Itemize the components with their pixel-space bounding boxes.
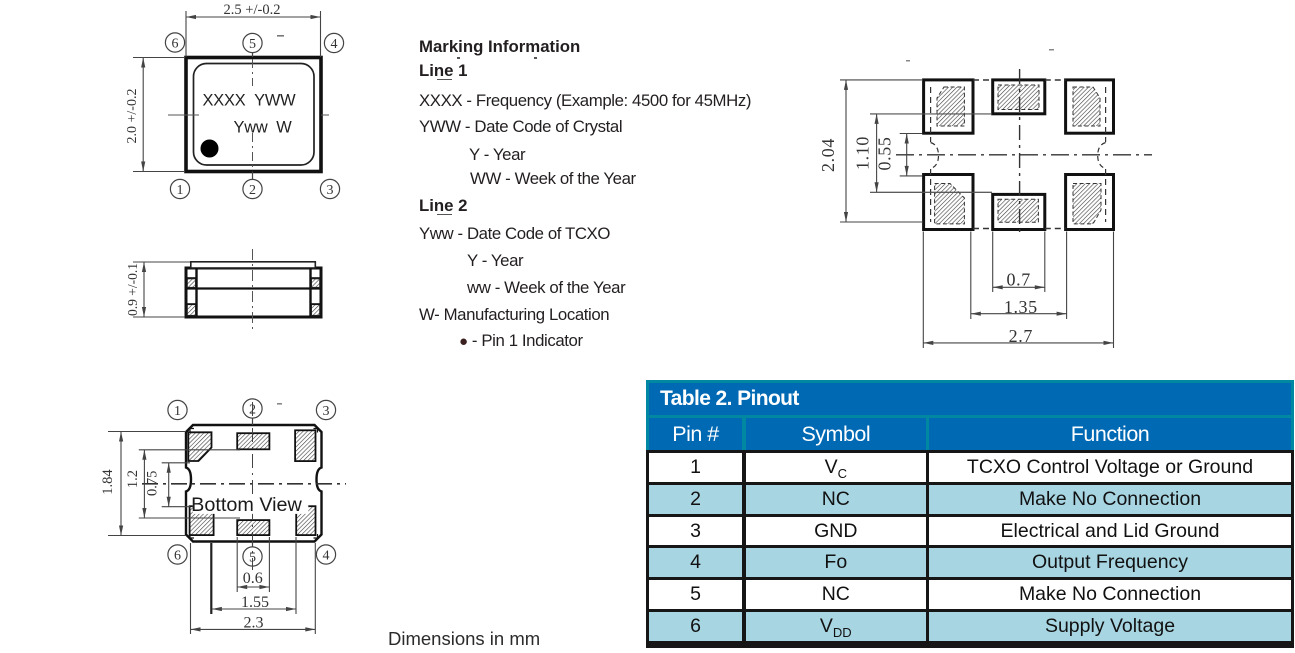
svg-text:0.55: 0.55: [875, 137, 895, 171]
svg-text:1.35: 1.35: [1004, 297, 1038, 317]
svg-text:2.04: 2.04: [818, 138, 838, 172]
svg-text:1.10: 1.10: [853, 136, 873, 170]
svg-text:2.7: 2.7: [1009, 326, 1033, 346]
svg-text:0.7: 0.7: [1007, 270, 1031, 290]
